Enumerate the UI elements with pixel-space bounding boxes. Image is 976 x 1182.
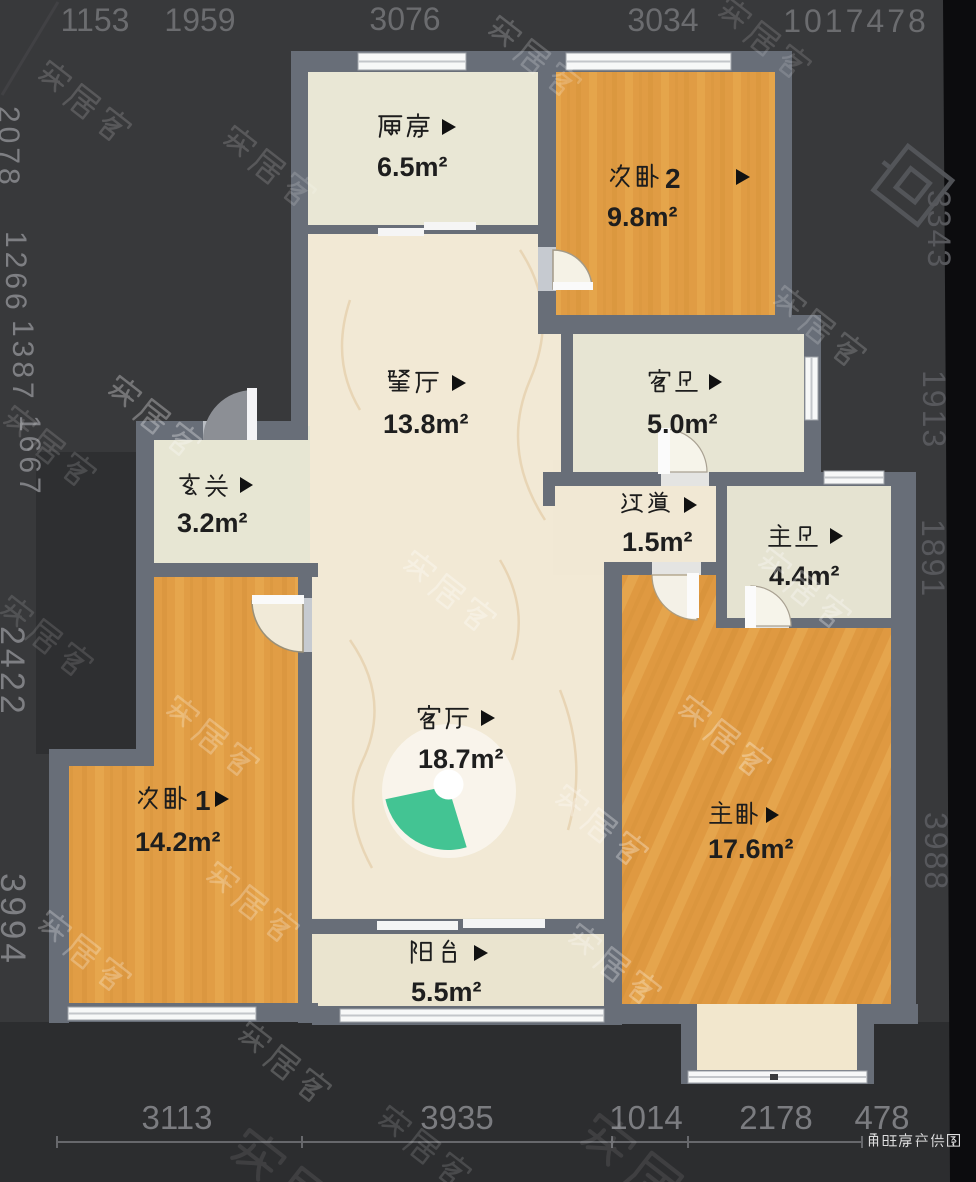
svg-text:13.8m²: 13.8m² — [383, 409, 469, 439]
svg-text:5.5m²: 5.5m² — [411, 977, 482, 1007]
svg-text:5.0m²: 5.0m² — [647, 409, 718, 439]
svg-text:3034: 3034 — [627, 2, 698, 38]
svg-text:6.5m²: 6.5m² — [377, 152, 448, 182]
svg-text:1153: 1153 — [61, 2, 130, 38]
svg-text:3935: 3935 — [420, 1099, 493, 1136]
svg-text:1891: 1891 — [915, 519, 951, 598]
svg-text:2: 2 — [665, 163, 681, 194]
svg-text:1017478: 1017478 — [783, 3, 929, 39]
svg-text:1959: 1959 — [164, 2, 235, 38]
svg-text:3113: 3113 — [142, 1099, 213, 1136]
svg-text:1266: 1266 — [0, 231, 32, 314]
svg-text:3994: 3994 — [0, 873, 32, 967]
svg-text:1.5m²: 1.5m² — [622, 527, 693, 557]
svg-text:3343: 3343 — [921, 190, 957, 269]
svg-text:1387: 1387 — [6, 320, 39, 403]
svg-text:17.6m²: 17.6m² — [708, 834, 794, 864]
svg-text:478: 478 — [854, 1099, 909, 1136]
svg-text:3988: 3988 — [918, 812, 954, 891]
svg-text:3.2m²: 3.2m² — [177, 508, 248, 538]
svg-text:9.8m²: 9.8m² — [607, 202, 678, 232]
svg-text:14.2m²: 14.2m² — [135, 827, 221, 857]
svg-text:1913: 1913 — [916, 370, 952, 449]
svg-text:4.4m²: 4.4m² — [769, 561, 840, 591]
svg-text:2078: 2078 — [0, 106, 25, 189]
svg-text:3076: 3076 — [369, 1, 440, 37]
svg-text:1: 1 — [195, 785, 211, 816]
svg-text:2178: 2178 — [739, 1099, 812, 1136]
svg-text:18.7m²: 18.7m² — [418, 744, 504, 774]
